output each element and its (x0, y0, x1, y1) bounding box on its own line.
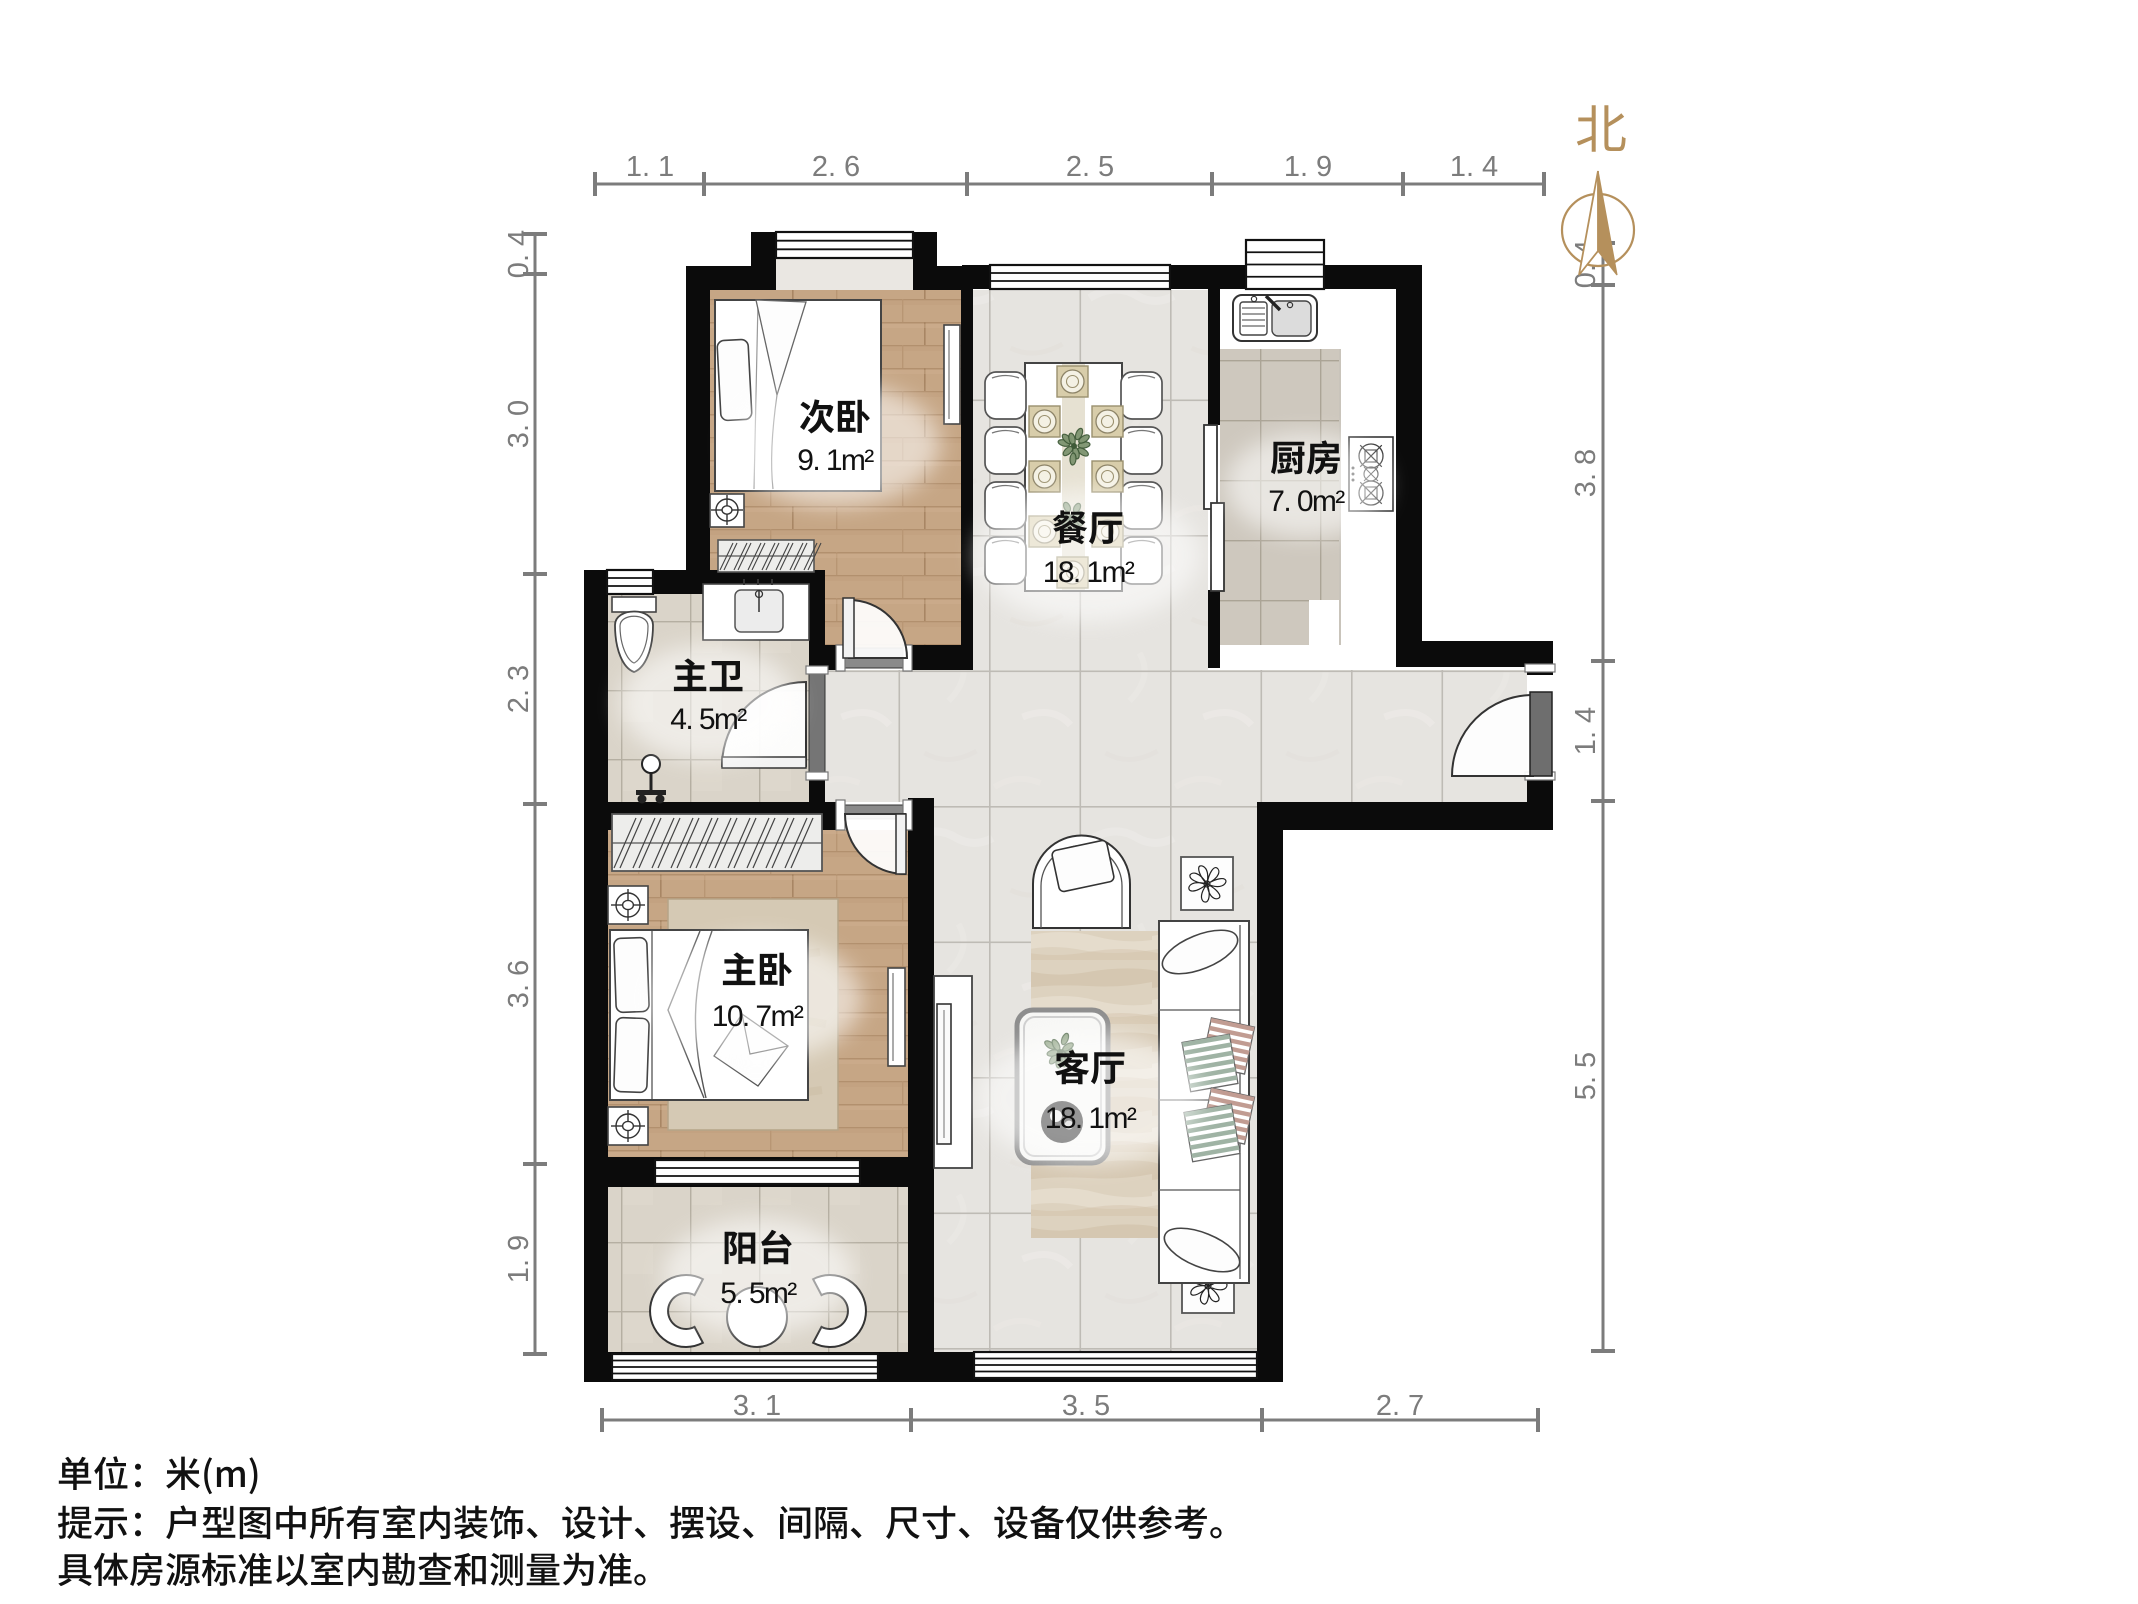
svg-text:3. 5: 3. 5 (1062, 1390, 1110, 1422)
svg-text:3. 0: 3. 0 (503, 400, 535, 448)
svg-text:3. 8: 3. 8 (1570, 449, 1602, 497)
svg-text:1. 4: 1. 4 (1450, 151, 1498, 183)
svg-text:1. 9: 1. 9 (503, 1235, 535, 1283)
svg-text:2. 5: 2. 5 (1066, 151, 1114, 183)
svg-text:2. 6: 2. 6 (812, 151, 860, 183)
svg-text:3. 6: 3. 6 (503, 960, 535, 1008)
svg-text:1. 1: 1. 1 (626, 151, 674, 183)
svg-text:18. 1m²: 18. 1m² (1045, 1102, 1137, 1135)
svg-text:5. 5m²: 5. 5m² (720, 1277, 797, 1310)
svg-text:2. 3: 2. 3 (503, 665, 535, 713)
svg-text:2. 7: 2. 7 (1376, 1390, 1424, 1422)
svg-text:10. 7m²: 10. 7m² (712, 1000, 804, 1033)
svg-text:7. 0m²: 7. 0m² (1268, 485, 1345, 518)
svg-text:3. 1: 3. 1 (733, 1390, 781, 1422)
svg-text:0. 4: 0. 4 (503, 230, 535, 278)
svg-text:4. 5m²: 4. 5m² (670, 703, 747, 736)
svg-text:1. 9: 1. 9 (1284, 151, 1332, 183)
svg-text:1. 4: 1. 4 (1570, 707, 1602, 755)
svg-text:18. 1m²: 18. 1m² (1043, 556, 1135, 589)
svg-text:9. 1m²: 9. 1m² (797, 444, 874, 477)
svg-text:5. 5: 5. 5 (1570, 1052, 1602, 1100)
